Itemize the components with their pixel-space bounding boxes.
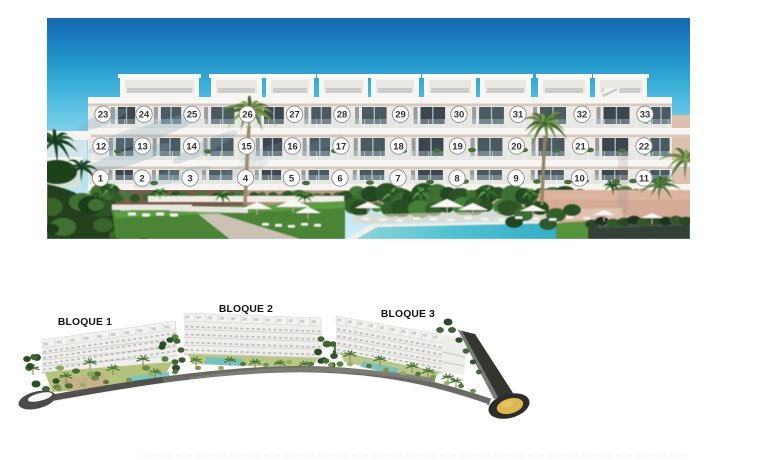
svg-text:20: 20: [511, 141, 522, 152]
svg-text:31: 31: [513, 110, 524, 121]
svg-text:32: 32: [577, 110, 588, 121]
svg-text:2: 2: [139, 173, 144, 184]
svg-text:25: 25: [187, 110, 198, 121]
svg-text:BLOQUE 2: BLOQUE 2: [219, 304, 273, 315]
svg-text:24: 24: [139, 110, 150, 121]
svg-text:3: 3: [187, 173, 192, 184]
svg-text:17: 17: [336, 141, 347, 152]
svg-text:BLOQUE 3: BLOQUE 3: [381, 309, 435, 320]
svg-text:23: 23: [98, 110, 109, 121]
svg-text:8: 8: [454, 173, 459, 184]
svg-text:BLOQUE 1: BLOQUE 1: [58, 317, 112, 328]
svg-text:30: 30: [454, 110, 465, 121]
svg-text:13: 13: [137, 141, 148, 152]
svg-text:16: 16: [287, 141, 298, 152]
svg-text:22: 22: [639, 141, 650, 152]
svg-text:1: 1: [98, 173, 104, 184]
svg-text:9: 9: [513, 173, 518, 184]
svg-text:27: 27: [289, 110, 300, 121]
svg-text:15: 15: [241, 141, 252, 152]
svg-text:21: 21: [575, 141, 586, 152]
svg-text:33: 33: [640, 110, 651, 121]
svg-text:28: 28: [337, 110, 348, 121]
svg-text:12: 12: [96, 141, 107, 152]
svg-text:11: 11: [639, 173, 650, 184]
svg-text:5: 5: [289, 173, 295, 184]
svg-text:7: 7: [395, 173, 400, 184]
svg-text:18: 18: [393, 141, 404, 152]
svg-text:6: 6: [337, 173, 342, 184]
svg-text:26: 26: [242, 110, 253, 121]
svg-text:19: 19: [452, 141, 463, 152]
svg-text:14: 14: [186, 141, 197, 152]
svg-text:10: 10: [574, 173, 585, 184]
svg-text:29: 29: [395, 110, 406, 121]
svg-text:4: 4: [243, 173, 249, 184]
